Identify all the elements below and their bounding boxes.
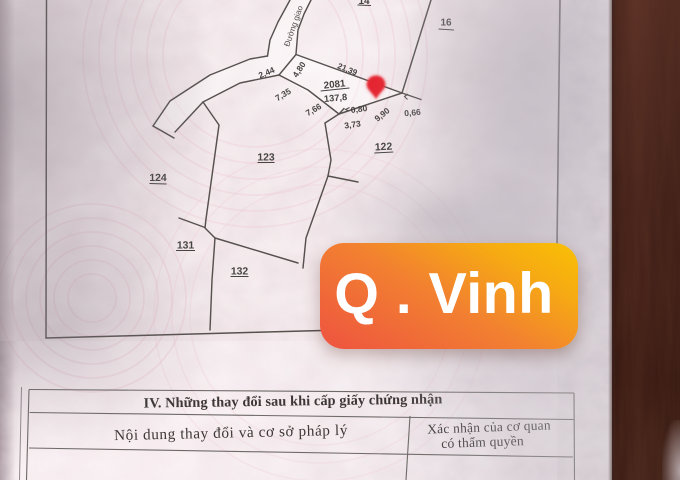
svg-text:137,8: 137,8 xyxy=(324,92,348,104)
svg-text:0,80: 0,80 xyxy=(350,103,368,115)
svg-text:có thẩm quyền: có thẩm quyền xyxy=(441,433,524,451)
svg-text:16: 16 xyxy=(440,18,452,29)
svg-text:122: 122 xyxy=(375,142,393,154)
svg-text:123: 123 xyxy=(257,153,275,164)
svg-text:132: 132 xyxy=(231,267,249,278)
svg-text:131: 131 xyxy=(177,241,195,252)
svg-text:0,66: 0,66 xyxy=(404,107,422,118)
svg-text:124: 124 xyxy=(149,173,167,184)
svg-text:14: 14 xyxy=(358,0,370,7)
